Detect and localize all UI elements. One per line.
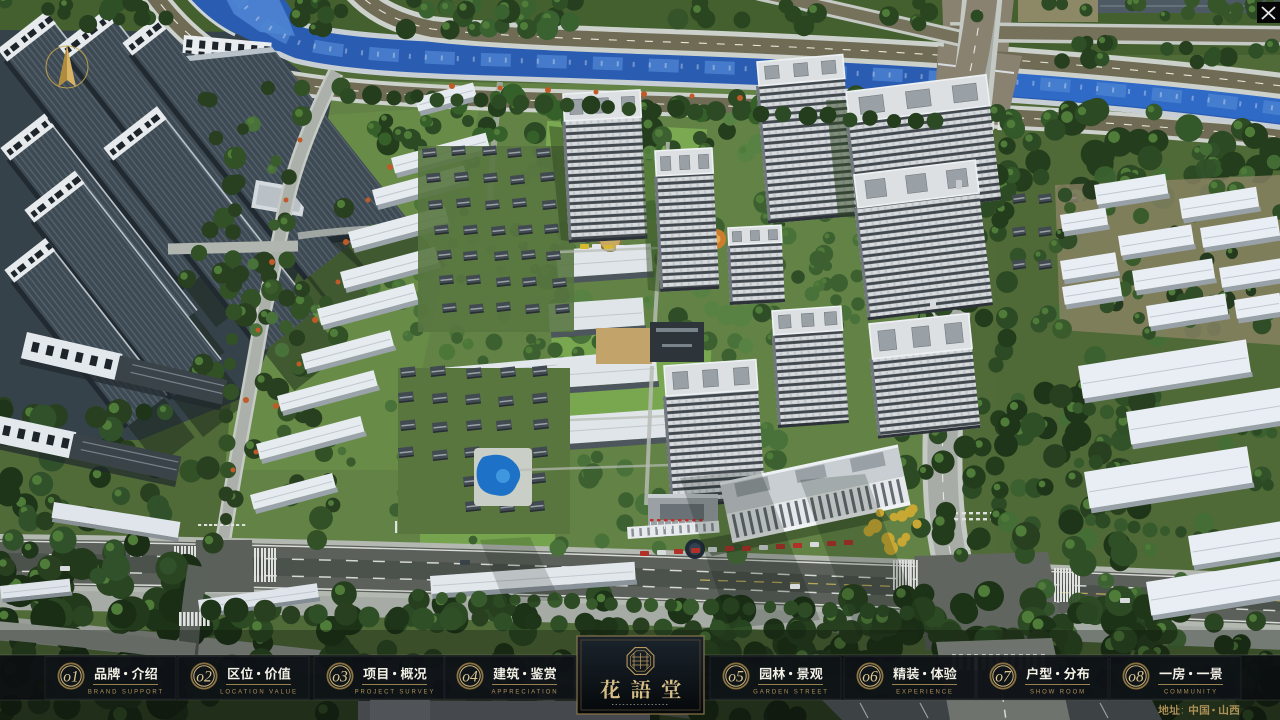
svg-text::: : [1181, 706, 1184, 717]
svg-text:o6: o6 [862, 669, 878, 686]
svg-text:o7: o7 [995, 669, 1012, 686]
svg-text:o2: o2 [196, 669, 212, 686]
svg-text:LOCATION VALUE: LOCATION VALUE [220, 690, 298, 696]
svg-text:o1: o1 [63, 669, 79, 686]
svg-text:o8: o8 [1128, 669, 1144, 686]
svg-text:PROJECT SURVEY: PROJECT SURVEY [355, 690, 436, 696]
svg-text:SHOW ROOM: SHOW ROOM [1030, 690, 1086, 696]
svg-text:o3: o3 [332, 669, 348, 686]
svg-text:o4: o4 [462, 669, 478, 686]
svg-text:BRAND SUPPORT: BRAND SUPPORT [88, 690, 164, 696]
svg-text:COMMUNITY: COMMUNITY [1164, 690, 1218, 696]
svg-text:APPRECIATION: APPRECIATION [491, 690, 558, 696]
svg-text:EXPERIENCE: EXPERIENCE [896, 690, 954, 696]
svg-text:GARDEN STREET: GARDEN STREET [753, 690, 829, 696]
svg-text:o5: o5 [728, 669, 744, 686]
